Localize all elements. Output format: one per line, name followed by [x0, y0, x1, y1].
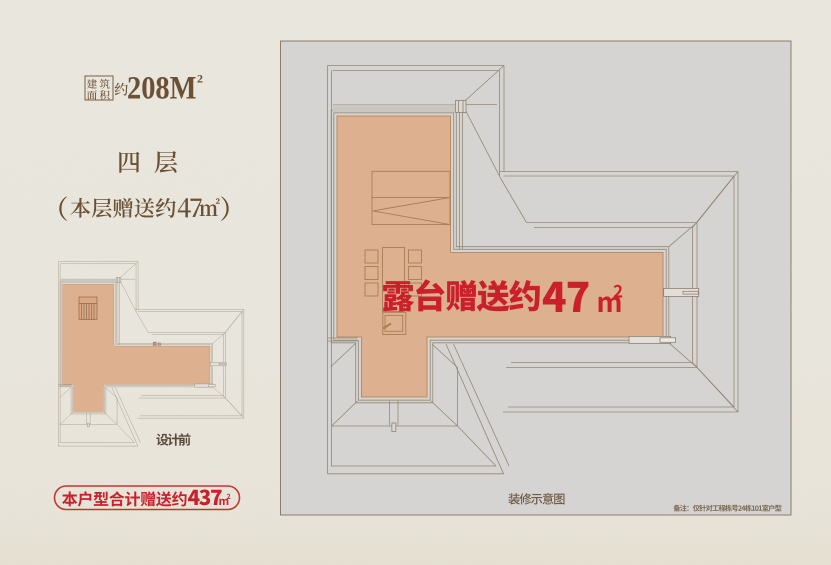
svg-text:208M: 208M	[127, 71, 197, 107]
svg-text:2: 2	[197, 72, 203, 86]
